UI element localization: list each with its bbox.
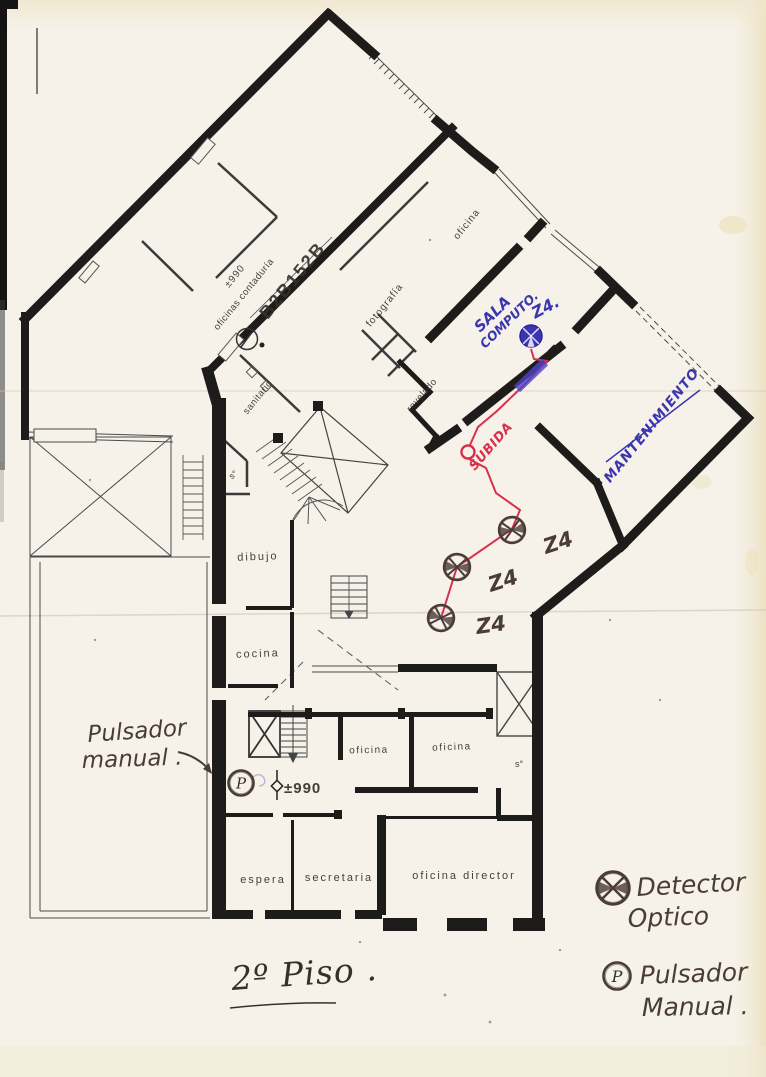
legend-pulsador-line1: Pulsador	[639, 957, 749, 990]
room-label-cocina: cocina	[236, 647, 280, 661]
legend-pulsador-line2: Manual .	[642, 991, 749, 1022]
room-label-oficina-director: oficina director	[412, 870, 516, 882]
room-label-oficina-left: oficina	[349, 745, 389, 757]
blue-detector-symbol	[520, 325, 542, 347]
manual-button-p: P	[235, 775, 247, 793]
room-label-oficina-right: oficina	[432, 741, 472, 753]
floor-plan-svg: oficinas contaduríafotografíaoficinasani…	[0, 0, 766, 1077]
room-label-dibujo: dibujo	[237, 550, 279, 563]
pulsador-note-line2: manual .	[81, 744, 183, 774]
survey-dot	[260, 343, 265, 348]
room-label-s-room-lower: s°	[515, 759, 524, 769]
legend-pulsador-p: P	[611, 967, 623, 986]
scan-edge-bar	[0, 0, 7, 310]
scanned-floor-plan-page: oficinas contaduríafotografíaoficinasani…	[0, 0, 766, 1077]
legend-detector-line2: Optico	[627, 901, 709, 933]
zone-label-z4-3: Z4	[473, 611, 507, 639]
paper-stain	[719, 216, 747, 234]
legend-detector-line1: Detector	[636, 867, 748, 902]
room-label-espera: espera	[240, 874, 286, 886]
room-label-secretaria: secretaria	[305, 872, 373, 884]
level-bottom-text: ±990	[284, 780, 321, 797]
